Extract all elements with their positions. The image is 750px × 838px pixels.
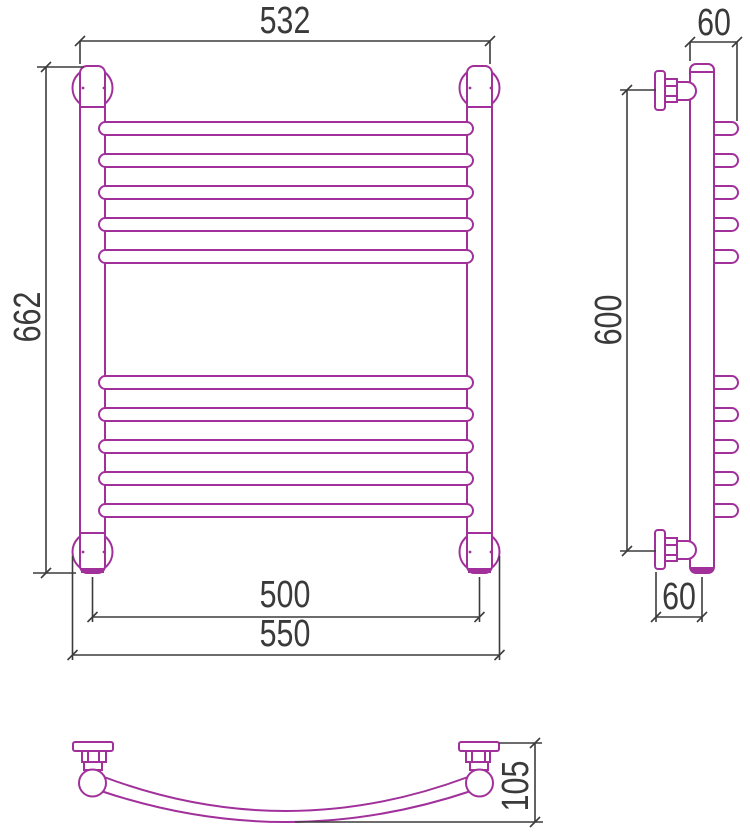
technical-drawing: 532 662 500 550 60 600 60 105 [0,0,750,838]
mount-plate [459,742,499,751]
post-end-caps [81,568,491,573]
rung [99,250,473,263]
dim-label-60-bottom: 60 [662,578,696,616]
bracket-stem [677,82,696,100]
post-joint-lines [80,107,492,533]
rung [99,504,473,517]
side-post-end-cap [691,567,713,572]
post-section [79,770,106,797]
bracket-nut [665,538,677,561]
dim-label-105: 105 [497,761,535,812]
front-post-right [467,66,492,573]
post-section [466,770,493,797]
rung [99,472,473,485]
rung [99,440,473,453]
front-rungs [99,122,473,517]
bowed-tube [101,777,471,822]
side-post [690,64,714,573]
front-post-left [80,66,105,573]
front-view [73,66,500,573]
dim-label-60-top: 60 [697,4,731,42]
rung [99,408,473,421]
rung [99,154,473,167]
rung [99,122,473,135]
bracket-plate [655,530,665,569]
drawing-linework [0,0,750,838]
dim-label-550: 550 [260,615,311,653]
rung [99,376,473,389]
dim-label-532: 532 [260,2,311,40]
bracket-plate [655,71,665,110]
bracket-stem [677,541,696,559]
side-view [655,64,738,573]
bracket-nut [665,79,677,102]
bottom-mount-right [459,742,499,797]
mount-nut [82,751,106,762]
mount-nut [466,751,490,762]
mount-plate [73,742,113,751]
bottom-mount-left [73,742,113,797]
rung [99,218,473,231]
dim-label-662: 662 [9,292,47,343]
bottom-view [73,742,499,822]
dim-label-500: 500 [260,576,311,614]
dim-label-600: 600 [590,295,628,346]
rung [99,186,473,199]
